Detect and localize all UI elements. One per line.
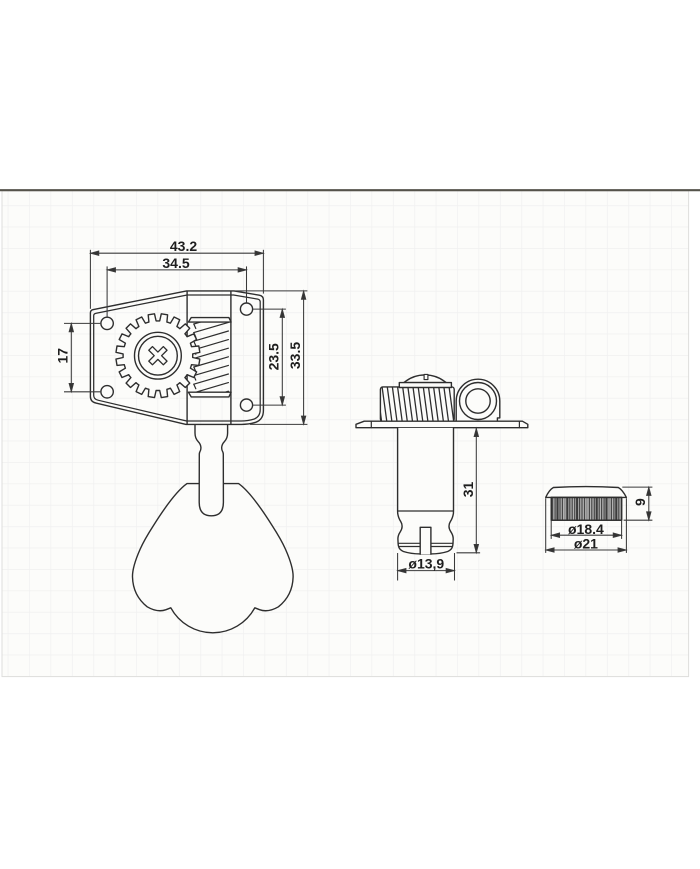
svg-text:9: 9 <box>632 498 648 506</box>
svg-text:23.5: 23.5 <box>266 343 282 370</box>
svg-text:ø21: ø21 <box>574 536 598 552</box>
svg-text:33.5: 33.5 <box>287 342 303 369</box>
svg-text:ø13,9: ø13,9 <box>408 556 444 572</box>
svg-text:34.5: 34.5 <box>162 255 189 271</box>
svg-text:ø18.4: ø18.4 <box>568 521 604 537</box>
svg-text:43.2: 43.2 <box>170 238 197 254</box>
svg-text:17: 17 <box>55 348 71 364</box>
svg-text:31: 31 <box>460 482 476 498</box>
